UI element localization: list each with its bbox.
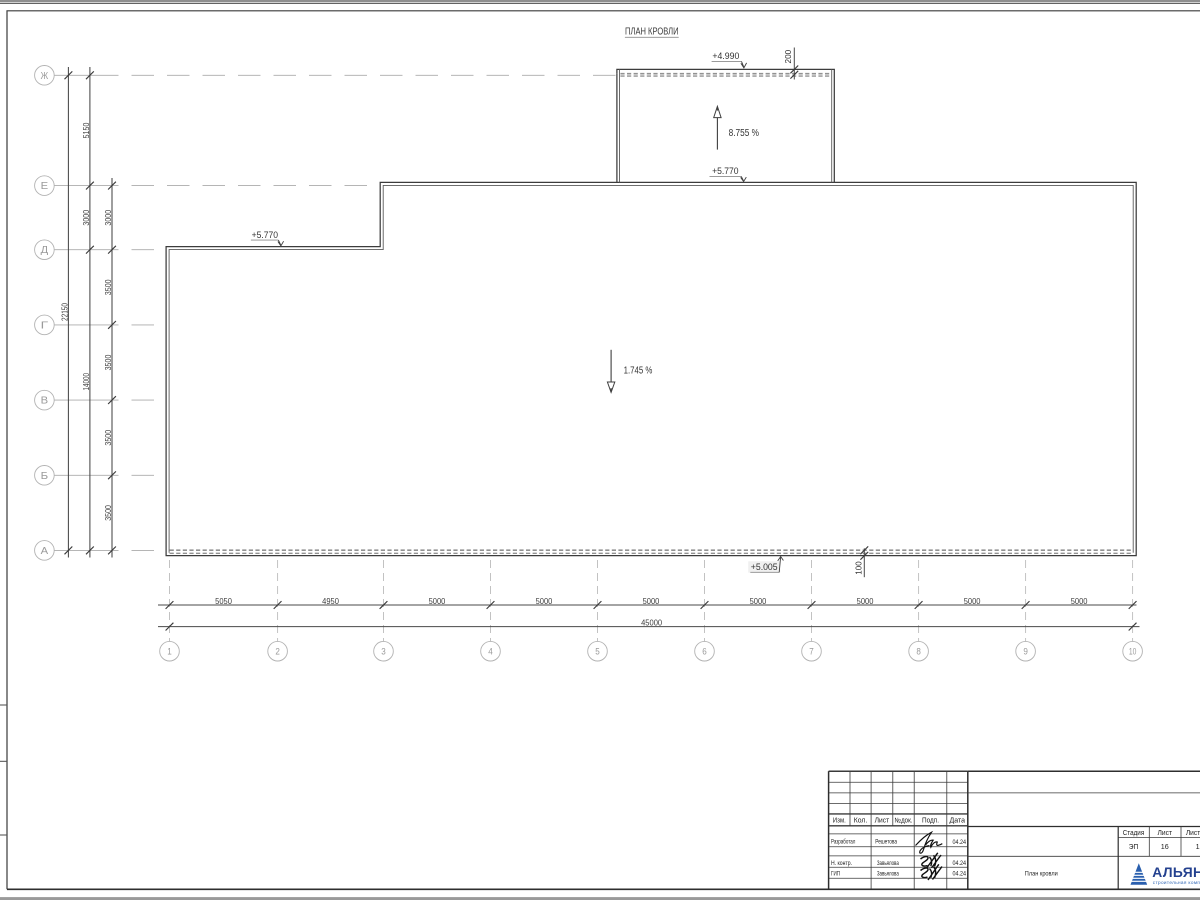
svg-text:Г: Г	[41, 320, 49, 331]
svg-text:ЭП: ЭП	[1129, 842, 1139, 851]
svg-text:3500: 3500	[103, 505, 113, 521]
svg-text:Ж: Ж	[41, 71, 49, 82]
svg-text:5000: 5000	[643, 596, 660, 606]
svg-text:Лист: Лист	[875, 818, 890, 825]
svg-text:5000: 5000	[750, 596, 767, 606]
svg-text:5000: 5000	[964, 596, 981, 606]
svg-text:5000: 5000	[857, 596, 874, 606]
svg-text:План кровли: План кровли	[1025, 870, 1058, 877]
svg-text:+5.005: +5.005	[751, 562, 778, 572]
svg-text:А: А	[41, 546, 49, 557]
svg-text:Стадия: Стадия	[1123, 830, 1145, 837]
svg-text:04.24: 04.24	[952, 871, 966, 878]
svg-text:+5.770: +5.770	[712, 166, 738, 177]
svg-text:№док.: №док.	[895, 818, 913, 825]
svg-text:9: 9	[1023, 647, 1028, 658]
svg-text:3500: 3500	[103, 279, 113, 295]
svg-text:Листов: Листов	[1186, 830, 1200, 837]
svg-text:Дата: Дата	[950, 818, 966, 825]
svg-text:04.24: 04.24	[952, 839, 966, 846]
svg-text:ПЛАН КРОВЛИ: ПЛАН КРОВЛИ	[625, 26, 679, 38]
svg-text:7: 7	[809, 647, 814, 658]
svg-text:Изм.: Изм.	[833, 818, 846, 825]
svg-text:Разработал: Разработал	[831, 839, 856, 846]
svg-text:5150: 5150	[81, 122, 91, 138]
svg-text:2: 2	[275, 647, 280, 658]
svg-text:АЛЬЯНС: АЛЬЯНС	[1152, 865, 1200, 880]
svg-text:8: 8	[916, 647, 921, 658]
svg-text:5050: 5050	[215, 596, 232, 606]
svg-text:22150: 22150	[59, 303, 69, 321]
svg-text:Завьялова: Завьялова	[877, 860, 899, 867]
svg-text:Завьялова: Завьялова	[877, 871, 899, 878]
svg-text:Д: Д	[41, 245, 49, 256]
svg-text:ГИП: ГИП	[831, 871, 840, 878]
svg-text:16: 16	[1161, 842, 1169, 851]
svg-text:Решетова: Решетова	[875, 839, 897, 846]
svg-text:1: 1	[167, 647, 172, 658]
svg-text:10: 10	[1129, 647, 1137, 658]
svg-text:строительная компания: строительная компания	[1153, 880, 1200, 885]
svg-text:3000: 3000	[81, 210, 91, 226]
svg-text:1.745 %: 1.745 %	[624, 365, 653, 376]
svg-text:04.24: 04.24	[952, 860, 966, 867]
svg-text:Н. контр.: Н. контр.	[831, 860, 852, 867]
svg-text:5000: 5000	[429, 596, 446, 606]
svg-text:+4.990: +4.990	[712, 51, 739, 62]
svg-text:100: 100	[855, 561, 864, 575]
svg-text:Лист: Лист	[1158, 830, 1173, 837]
svg-text:3: 3	[381, 647, 386, 658]
svg-text:5000: 5000	[536, 596, 553, 606]
svg-text:16: 16	[1196, 842, 1200, 851]
svg-text:3500: 3500	[103, 430, 113, 446]
svg-text:Кол.: Кол.	[854, 818, 868, 825]
svg-text:Е: Е	[41, 181, 49, 192]
svg-text:Б: Б	[41, 471, 49, 482]
svg-text:Подп.: Подп.	[922, 818, 939, 825]
svg-text:14000: 14000	[81, 373, 91, 391]
svg-text:4950: 4950	[322, 596, 339, 606]
svg-text:5000: 5000	[1071, 596, 1088, 606]
svg-text:200: 200	[784, 49, 793, 63]
svg-text:8.755 %: 8.755 %	[729, 128, 759, 139]
svg-text:45000: 45000	[641, 617, 662, 627]
svg-text:5: 5	[595, 647, 600, 658]
svg-text:6: 6	[702, 647, 707, 658]
svg-text:4: 4	[488, 647, 493, 658]
svg-text:+5.770: +5.770	[252, 230, 278, 241]
svg-text:3000: 3000	[103, 210, 113, 226]
svg-text:В: В	[41, 396, 49, 407]
svg-text:3500: 3500	[103, 354, 113, 370]
